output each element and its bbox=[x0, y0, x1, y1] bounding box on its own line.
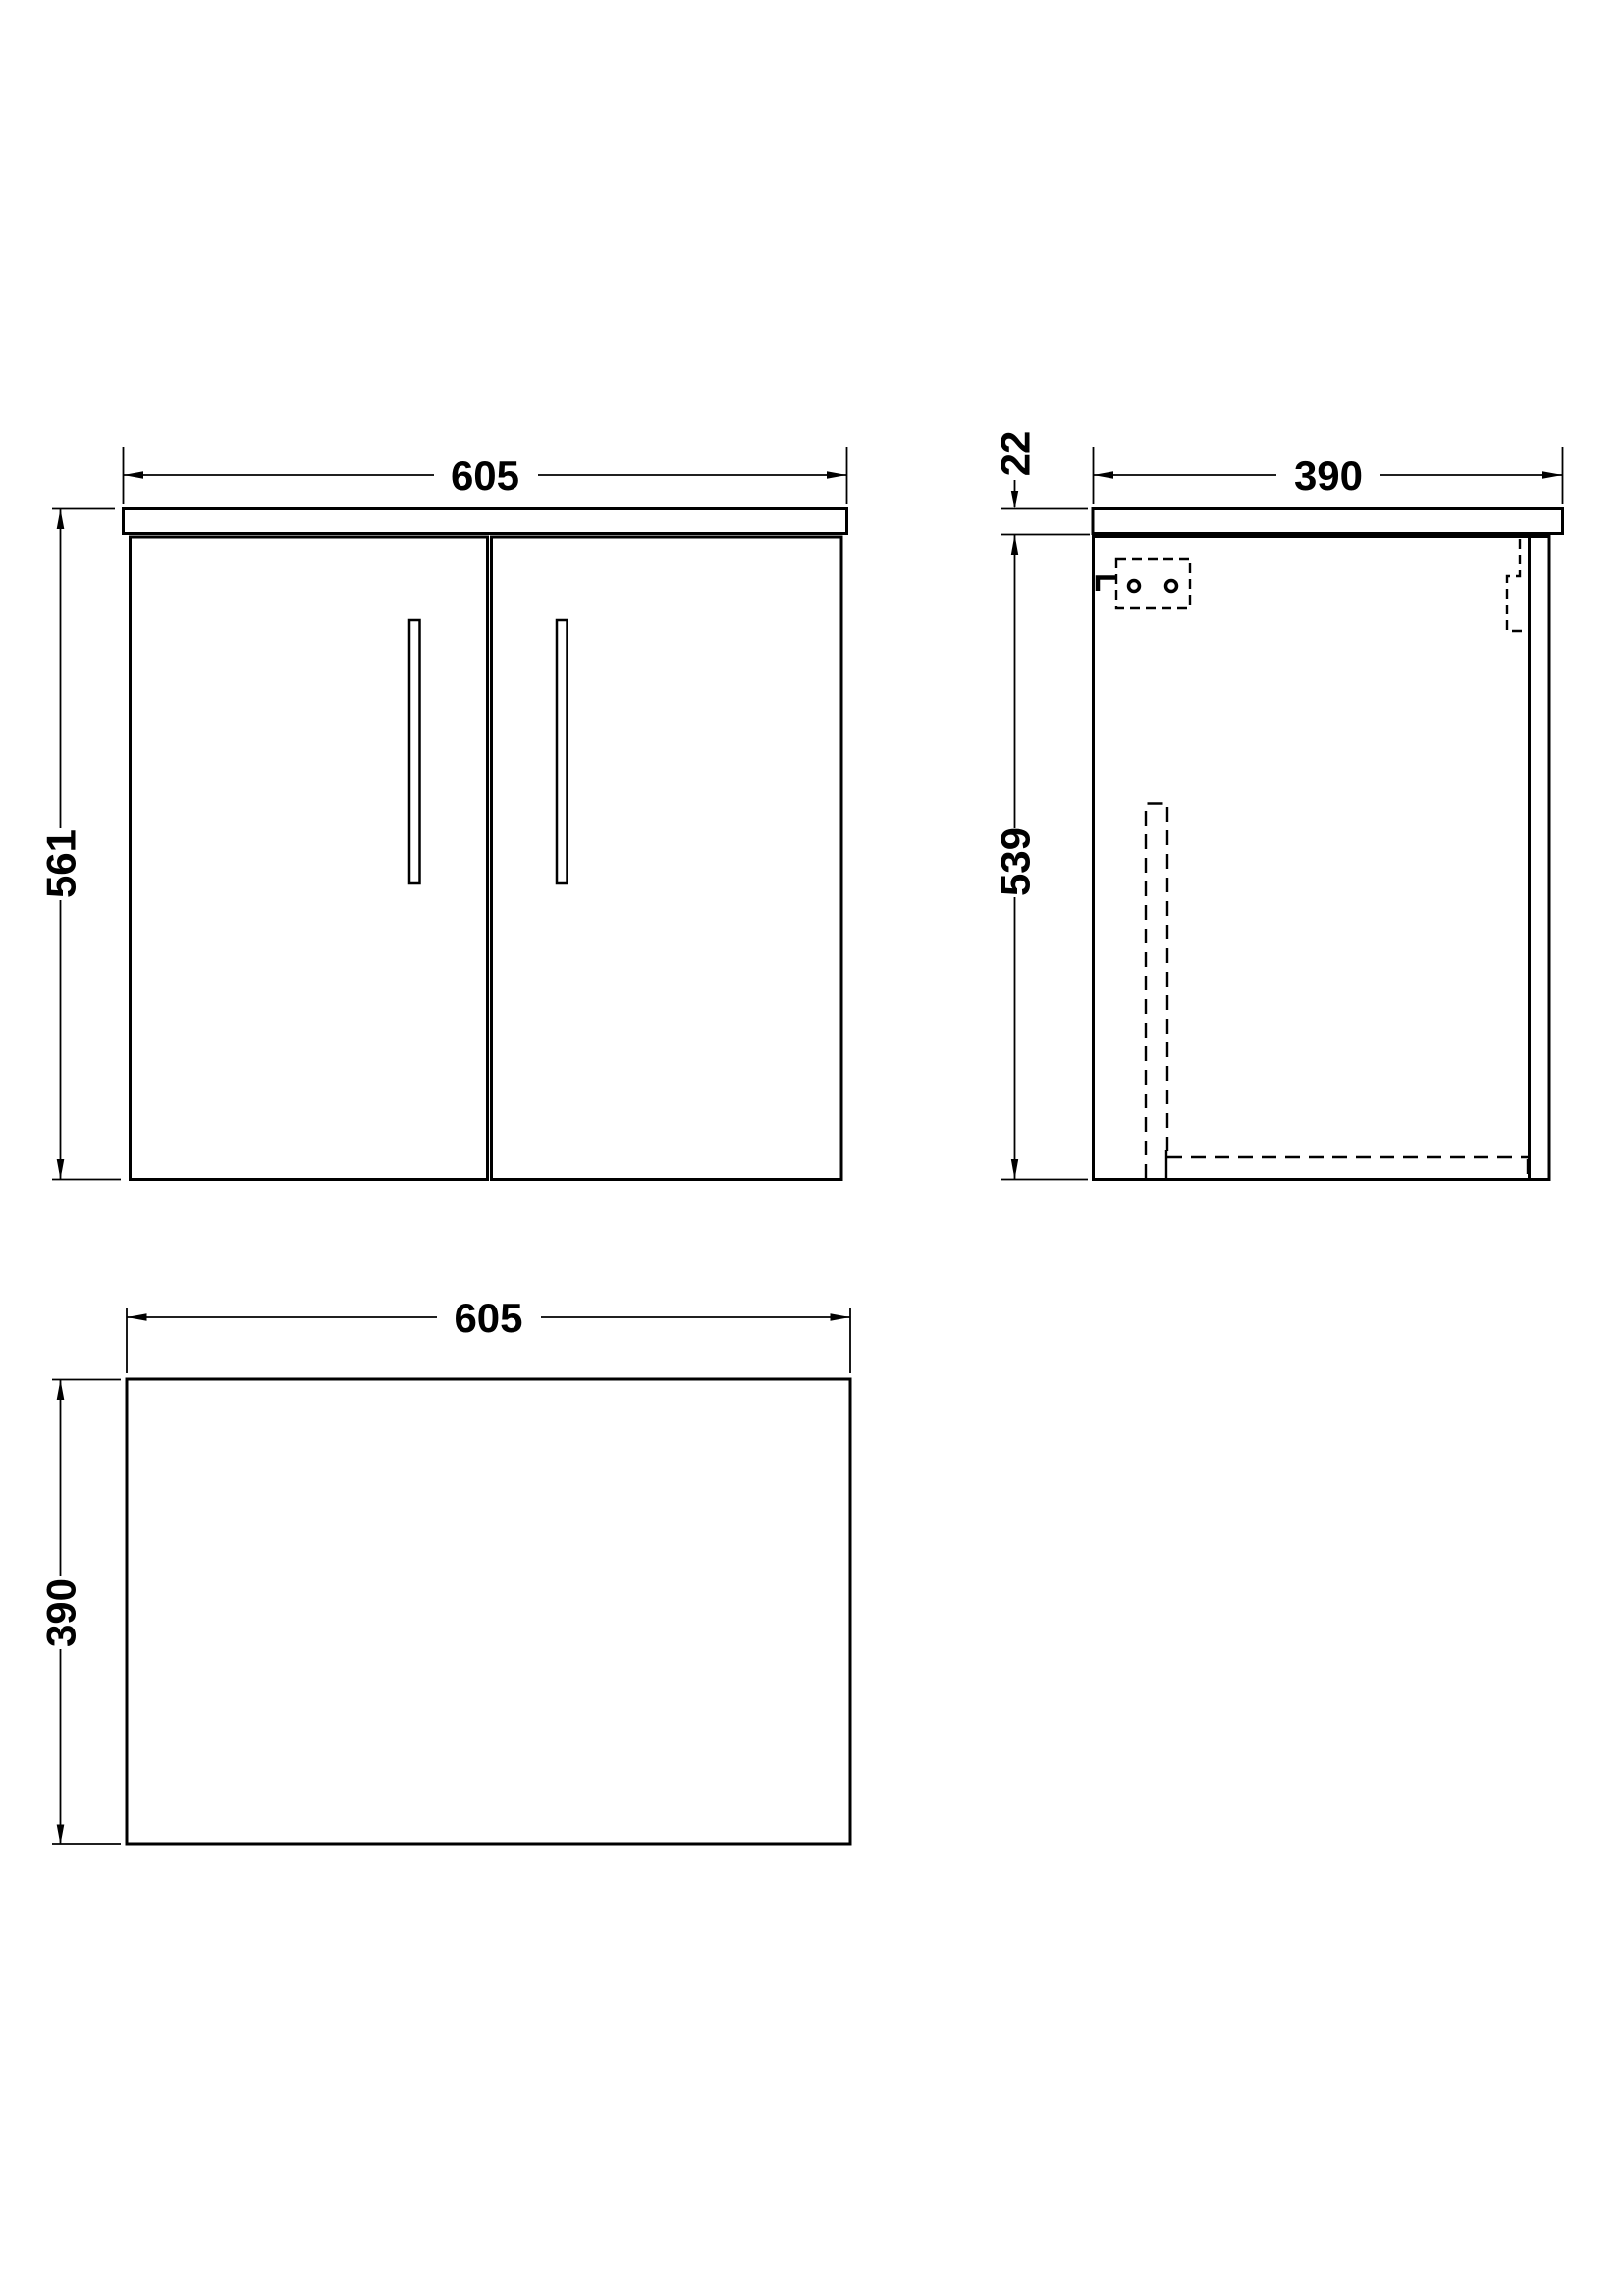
front-right-door-handle bbox=[557, 620, 568, 883]
bracket-screw bbox=[1166, 581, 1177, 592]
plan-width-label: 605 bbox=[454, 1295, 522, 1341]
technical-drawing-page: 605 561 bbox=[0, 0, 1623, 2296]
front-left-door bbox=[131, 537, 488, 1180]
arrowhead-left bbox=[127, 1313, 147, 1321]
arrowhead-right bbox=[827, 471, 847, 479]
plan-depth-dimension: 390 bbox=[38, 1380, 122, 1845]
side-depth-dimension: 390 bbox=[1094, 447, 1563, 504]
side-countertop bbox=[1093, 509, 1563, 534]
arrowhead-right bbox=[831, 1313, 851, 1321]
arrowhead-right bbox=[1542, 471, 1563, 479]
arrowhead-left bbox=[1094, 471, 1114, 479]
front-view: 605 561 bbox=[38, 447, 847, 1180]
side-view: 390 22 539 bbox=[993, 431, 1563, 1180]
front-width-dimension: 605 bbox=[124, 447, 847, 504]
front-left-door-handle bbox=[409, 620, 420, 883]
dimension-drawing: 605 561 bbox=[0, 0, 1623, 2296]
front-right-door bbox=[492, 537, 842, 1180]
side-body-height-dimension: 539 bbox=[993, 535, 1089, 1180]
plan-countertop-outline bbox=[127, 1379, 850, 1844]
arrowhead-down bbox=[1011, 1159, 1018, 1180]
arrowhead-down bbox=[1011, 491, 1018, 509]
front-height-label: 561 bbox=[38, 829, 84, 898]
side-cabinet-body bbox=[1094, 537, 1550, 1180]
front-height-dimension: 561 bbox=[38, 509, 122, 1180]
arrowhead-down bbox=[57, 1159, 65, 1180]
arrowhead-up bbox=[57, 509, 65, 530]
arrowhead-up bbox=[57, 1380, 65, 1401]
plan-depth-label: 390 bbox=[38, 1578, 84, 1647]
arrowhead-down bbox=[57, 1825, 65, 1845]
plan-width-dimension: 605 bbox=[127, 1295, 850, 1373]
plan-view: 605 390 bbox=[38, 1295, 851, 1844]
side-countertop-thickness-dimension: 22 bbox=[993, 431, 1091, 535]
side-depth-label: 390 bbox=[1294, 453, 1363, 499]
arrowhead-left bbox=[124, 471, 144, 479]
front-width-label: 605 bbox=[451, 453, 519, 499]
bracket-screw bbox=[1129, 581, 1140, 592]
side-body-height-label: 539 bbox=[993, 828, 1039, 896]
countertop-thickness-label: 22 bbox=[993, 431, 1039, 477]
front-countertop bbox=[124, 509, 847, 534]
